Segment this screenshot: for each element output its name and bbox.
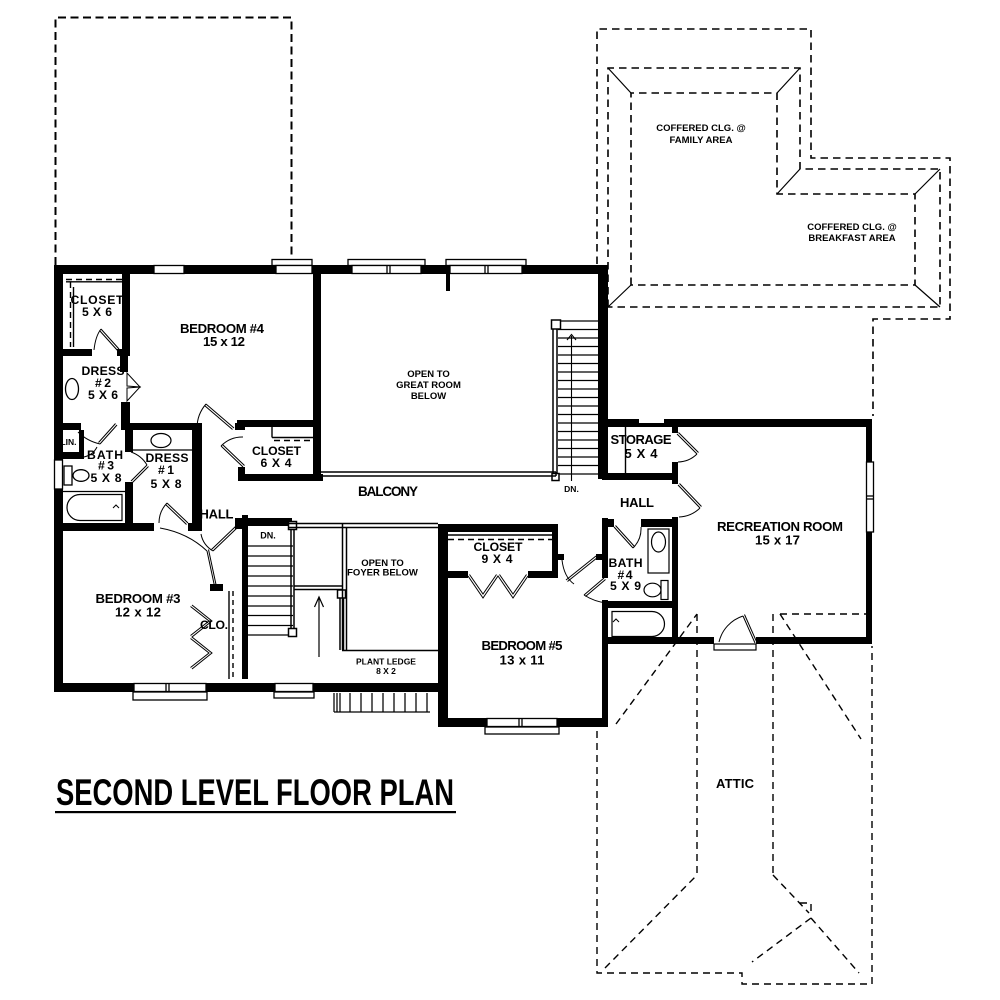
svg-text:LIN.: LIN. (60, 437, 76, 447)
svg-text:COFFERED CLG. @: COFFERED CLG. @ (807, 222, 897, 233)
svg-text:DRESS: DRESS (82, 364, 125, 378)
svg-text:5 X 8: 5 X 8 (91, 471, 122, 485)
svg-text:8 X 2: 8 X 2 (376, 666, 396, 676)
svg-text:5 X 8: 5 X 8 (151, 477, 182, 491)
svg-text:PLANT LEDGE: PLANT LEDGE (356, 657, 416, 667)
svg-text:ATTIC: ATTIC (716, 776, 755, 791)
svg-text:13 x 11: 13 x 11 (500, 653, 545, 668)
svg-text:BATH: BATH (87, 448, 123, 462)
svg-text:OPEN TO: OPEN TO (407, 369, 450, 380)
svg-text:DN.: DN. (260, 531, 276, 541)
svg-text:FOYER BELOW: FOYER BELOW (347, 568, 418, 579)
svg-text:15 x 17: 15 x 17 (755, 533, 800, 548)
svg-text:5 X 4: 5 X 4 (625, 446, 659, 461)
svg-text:15 x 12: 15 x 12 (203, 334, 245, 349)
svg-text:6 X 4: 6 X 4 (261, 456, 292, 470)
svg-text:9 X 4: 9 X 4 (482, 552, 513, 566)
svg-text:FAMILY AREA: FAMILY AREA (670, 135, 733, 146)
svg-text:DN.: DN. (564, 484, 579, 494)
svg-text:BEDROOM #5: BEDROOM #5 (482, 638, 563, 653)
svg-text:HALL: HALL (620, 495, 654, 510)
svg-text:STORAGE: STORAGE (611, 432, 672, 447)
svg-text:GREAT ROOM: GREAT ROOM (396, 380, 461, 391)
svg-text:12 x 12: 12 x 12 (115, 605, 161, 620)
svg-text:CLO.: CLO. (200, 618, 228, 632)
svg-text:5 X 6: 5 X 6 (82, 305, 112, 319)
svg-text:HALL: HALL (200, 507, 234, 522)
svg-text:5 X 6: 5 X 6 (88, 388, 118, 402)
svg-text:5 X 9: 5 X 9 (610, 579, 641, 593)
svg-text:BREAKFAST AREA: BREAKFAST AREA (808, 233, 895, 244)
svg-text:SECOND LEVEL FLOOR PLAN: SECOND LEVEL FLOOR PLAN (56, 772, 454, 813)
svg-text:BELOW: BELOW (411, 391, 446, 402)
svg-text:COFFERED CLG. @: COFFERED CLG. @ (656, 123, 746, 134)
svg-text:BALCONY: BALCONY (358, 484, 418, 499)
